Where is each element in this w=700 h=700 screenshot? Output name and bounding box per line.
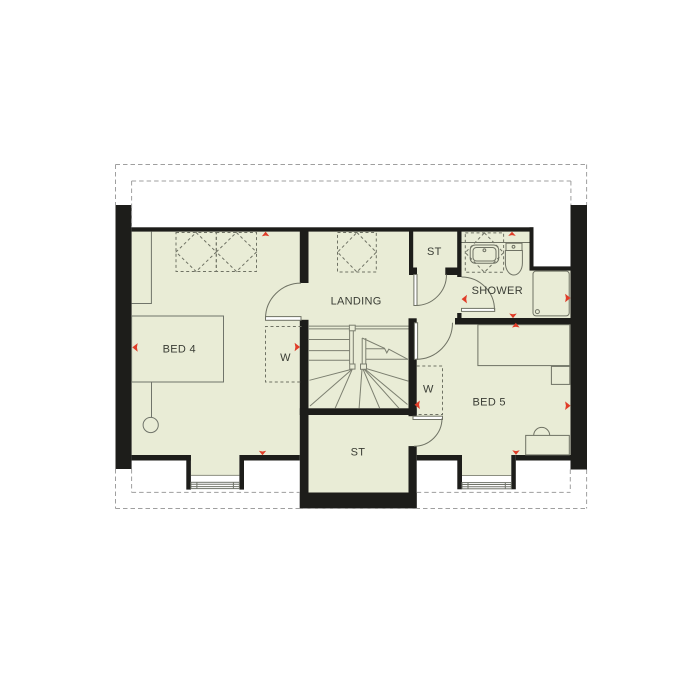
svg-text:BED 4: BED 4 <box>163 343 196 355</box>
svg-text:ST: ST <box>427 246 442 258</box>
svg-text:SHOWER: SHOWER <box>472 285 523 297</box>
svg-text:BED 5: BED 5 <box>473 397 506 409</box>
svg-text:W: W <box>280 352 291 364</box>
svg-text:W: W <box>423 383 434 395</box>
svg-text:ST: ST <box>351 447 366 459</box>
svg-text:LANDING: LANDING <box>331 296 382 308</box>
